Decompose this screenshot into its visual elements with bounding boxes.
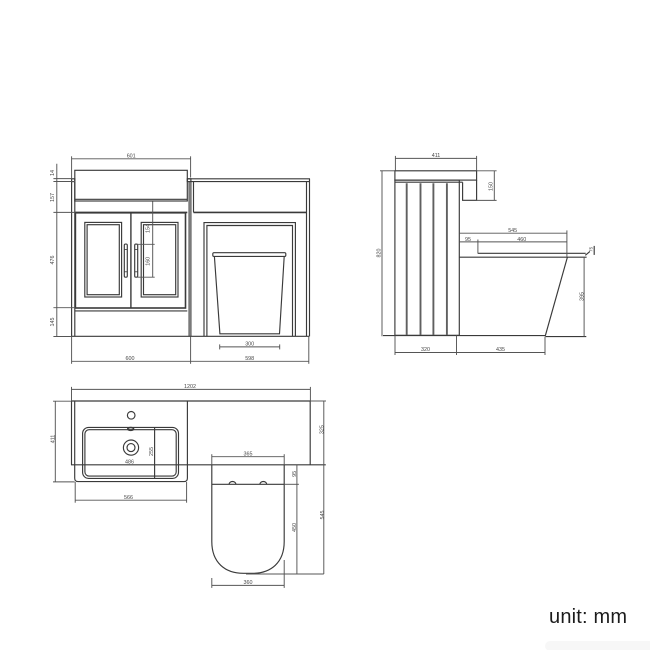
svg-text:411: 411 <box>432 153 441 159</box>
svg-text:435: 435 <box>496 347 505 353</box>
svg-text:255: 255 <box>149 447 155 456</box>
svg-text:300: 300 <box>245 342 254 348</box>
svg-text:365: 365 <box>244 451 253 457</box>
svg-text:566: 566 <box>124 495 133 501</box>
svg-text:1202: 1202 <box>184 384 196 390</box>
svg-text:545: 545 <box>508 228 517 234</box>
svg-text:95: 95 <box>292 471 298 477</box>
svg-text:476: 476 <box>50 256 56 265</box>
svg-text:157: 157 <box>50 193 56 202</box>
svg-text:75: 75 <box>589 246 594 252</box>
svg-text:600: 600 <box>126 356 135 362</box>
svg-text:395: 395 <box>579 292 585 301</box>
svg-text:450: 450 <box>292 523 298 532</box>
svg-text:460: 460 <box>517 237 526 243</box>
svg-text:95: 95 <box>465 237 471 243</box>
svg-text:360: 360 <box>244 580 253 586</box>
svg-text:160: 160 <box>146 257 152 266</box>
svg-text:598: 598 <box>245 356 254 362</box>
svg-text:154: 154 <box>146 224 152 233</box>
svg-text:14: 14 <box>50 170 56 176</box>
svg-text:150: 150 <box>488 182 494 191</box>
svg-text:411: 411 <box>51 435 57 444</box>
svg-text:320: 320 <box>421 347 430 353</box>
svg-text:325: 325 <box>319 425 325 434</box>
svg-text:545: 545 <box>320 511 326 520</box>
svg-text:486: 486 <box>125 459 134 465</box>
svg-text:145: 145 <box>50 318 56 327</box>
svg-text:601: 601 <box>127 153 136 159</box>
svg-text:820: 820 <box>377 249 383 258</box>
